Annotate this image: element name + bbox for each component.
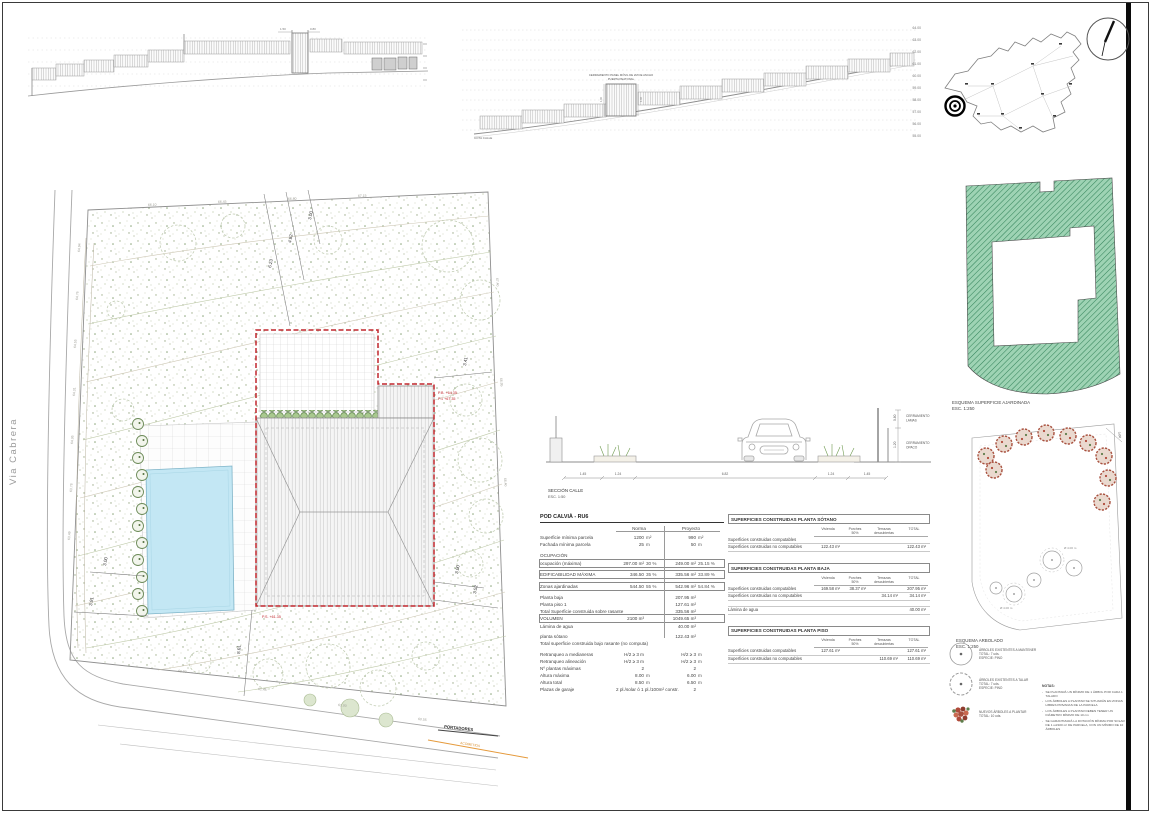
- dim-label: 0.80: [893, 414, 897, 421]
- svg-text:61.90: 61.90: [178, 669, 187, 674]
- header-spacer: [728, 576, 814, 586]
- cell-total: 34.14 m²: [900, 593, 928, 600]
- proyecto-value: H/2 ≥ 3: [662, 658, 698, 665]
- table-row: planta sótano 122.43 m²: [540, 633, 724, 640]
- svg-text:P.S. +61.35: P.S. +61.35: [262, 615, 281, 619]
- tree-plan-diagram: Ø 4.00 m Ø 4.00 m 3.00: [956, 412, 1124, 634]
- proyecto-value: H/2 ≥ 3: [662, 651, 698, 658]
- row-label: Superficies construidas no computables: [728, 544, 814, 551]
- svg-text:66.95: 66.95: [499, 378, 504, 387]
- proyecto-value: [662, 552, 698, 559]
- svg-text:63.49: 63.49: [67, 531, 72, 540]
- built-table-rows: Superficies construidas computables 127.…: [728, 648, 930, 664]
- table-row: [540, 567, 724, 571]
- proyecto-unit: [698, 608, 720, 615]
- table-row: Zonas ajardinadas 544.50 55 % 542.96 m² …: [540, 583, 724, 590]
- fence-type-labels: CERRAMIENTO LAMAS CERRAMIENTO OPACO: [906, 414, 930, 450]
- proyecto-value: 2: [662, 665, 698, 672]
- norma-value: 346.50: [616, 571, 646, 578]
- norma-value: [616, 552, 646, 559]
- norma-value: 8.00: [616, 672, 646, 679]
- normativa-title: POD CALVIÀ - RU6: [540, 514, 724, 523]
- row-label: planta sótano: [540, 633, 616, 640]
- table-row: Fachada mínima parcela 25 m 50 m: [540, 541, 724, 548]
- gate: [292, 33, 308, 73]
- svg-text:P.1 +67.35: P.1 +67.35: [438, 397, 455, 401]
- norma-value: [616, 633, 646, 640]
- level-value: 58.00: [895, 99, 921, 103]
- nota-item: - LOS ÁRBOLES A PLANTAR SE SITUARÁN EN Z…: [1042, 699, 1128, 707]
- col-proyecto: Proyecto: [662, 526, 720, 532]
- elevation-levels: 64.0063.0062.0061.0060.0059.0058.0057.00…: [895, 27, 921, 139]
- svg-text:66.45: 66.45: [218, 200, 227, 204]
- dim-label: 1.00: [639, 96, 643, 102]
- norma-unit: [646, 658, 662, 665]
- table-row: Total superficie construida bajo rasante…: [540, 640, 724, 647]
- proyecto-value: 6.50: [662, 679, 698, 686]
- row-label: ocupación (máxima): [540, 560, 616, 567]
- via-cabrera-label: Via Cabrera: [8, 418, 19, 485]
- table-row: Altura máxima 8.00 m 6.00 m: [540, 672, 724, 679]
- proyecto-unit: m²: [698, 534, 720, 541]
- cell-vivienda: [814, 593, 842, 600]
- cell-porches: 38.37 m²: [842, 586, 868, 593]
- bottom-label: COTA CALLE: [474, 136, 492, 140]
- bullet-dash: -: [1042, 719, 1043, 731]
- row-label: Superficie mínima parcela: [540, 534, 616, 541]
- level-value: 64.00: [895, 27, 921, 31]
- col-terrazas: Terrazas descubiertas: [868, 527, 900, 537]
- svg-text:P.B. +64.35: P.B. +64.35: [438, 391, 457, 395]
- table-row: Lámina de agua 40.00 m²: [728, 606, 930, 615]
- proyecto-unit: [698, 601, 720, 608]
- cell-vivienda: 127.61 m²: [814, 648, 842, 655]
- fence-elevation-b: CERRAMIENTO PANEL MÓVIL DE 2M DE ANCHO P…: [462, 20, 917, 142]
- proyecto-value: 127.61 m²: [662, 601, 698, 608]
- nota-item: - SE PLANTARÁ UN MÍNIMO DE 1 ÁRBOL POR C…: [1042, 690, 1128, 698]
- nota-item: - SE GARANTIZARÁ LA DOTACIÓN MÍNIMA POR …: [1042, 719, 1128, 731]
- row-label: Superficies construidas computables: [728, 586, 814, 593]
- col-vivienda: Vivienda: [814, 576, 842, 586]
- bin-boxes: [372, 57, 417, 70]
- table-divider: [664, 526, 665, 638]
- svg-text:1.24: 1.24: [615, 472, 622, 476]
- norma-unit: [646, 665, 662, 672]
- diameter-label: Ø 4.00 m: [1000, 606, 1013, 610]
- row-label: [540, 567, 616, 571]
- notes-block: NOTAS: - SE PLANTARÁ UN MÍNIMO DE 1 ÁRBO…: [1042, 684, 1128, 732]
- built-table-title: SUPERFICIES CONSTRUIDAS PLANTA BAJA: [728, 563, 930, 573]
- nota-text: LOS ÁRBOLES A PLANTAR SE SITUARÁN EN ZON…: [1046, 699, 1128, 707]
- proyecto-value: 50: [662, 541, 698, 548]
- norma-value: 2: [616, 665, 646, 672]
- proyecto-value: 335.56 m²: [662, 571, 698, 578]
- bullet-dash: -: [1042, 690, 1043, 698]
- proyecto-unit: [698, 552, 720, 559]
- level-value: 55.00: [895, 135, 921, 139]
- norma-value: 2100 m³: [616, 615, 646, 622]
- notes-title: NOTAS:: [1042, 684, 1128, 688]
- fence-panels: [480, 53, 914, 129]
- norma-unit: [646, 594, 662, 601]
- norma-unit: 30 %: [646, 560, 662, 567]
- norma-value: [616, 579, 646, 583]
- proyecto-value: 207.95 m²: [662, 594, 698, 601]
- built-table-header: Vivienda Porches 50% Terrazas descubiert…: [728, 527, 930, 537]
- col-total: TOTAL: [900, 638, 928, 648]
- built-table: SUPERFICIES CONSTRUIDAS PLANTA SÓTANO Vi…: [728, 514, 930, 552]
- caption-title: ESQUEMA SUPERFICIE AJARDINADA: [952, 400, 1030, 406]
- cell-terrazas: [868, 648, 900, 655]
- cell-porches: [842, 537, 868, 544]
- proyecto-value: [662, 579, 698, 583]
- col-porches: Porches 50%: [842, 638, 868, 648]
- diameter-label: Ø 4.00 m: [1064, 546, 1077, 550]
- table-row: EDIFICABILIDAD MÁXIMA 346.50 35 % 335.56…: [540, 571, 724, 578]
- proyecto-value: 122.43 m²: [662, 633, 698, 640]
- site-target-icon: [946, 97, 965, 116]
- tree-legend: ÁRBOLES EXISTENTES A MANTENER TOTAL: 7 u…: [948, 641, 1040, 731]
- norma-value: [616, 623, 646, 630]
- svg-text:1.45: 1.45: [864, 472, 871, 476]
- north-arrow-icon: [1085, 16, 1131, 62]
- cell-porches: [842, 656, 868, 663]
- built-table: SUPERFICIES CONSTRUIDAS PLANTA PISO Vivi…: [728, 626, 930, 664]
- built-surfaces-tables: SUPERFICIES CONSTRUIDAS PLANTA SÓTANO Vi…: [728, 514, 930, 675]
- island-outline: [945, 32, 1081, 132]
- pool: [146, 466, 234, 614]
- proyecto-value: [724, 640, 726, 647]
- table-row: Total Superficie construida sobre rasant…: [540, 608, 724, 615]
- gate-note: PUERTA PEATONAL: [608, 77, 635, 81]
- dim-label: 1.20: [893, 441, 897, 448]
- norma-value: 297.00 m²: [616, 560, 646, 567]
- cell-total: 110.69 m²: [900, 656, 928, 663]
- proyecto-unit: [698, 579, 720, 583]
- cell-total: 40.00 m²: [900, 607, 928, 614]
- svg-text:64.94: 64.94: [77, 243, 82, 252]
- built-table-rows: Superficies construidas computables 169.…: [728, 586, 930, 615]
- svg-text:CERRAMIENTO: CERRAMIENTO: [906, 441, 930, 445]
- row-label: Zonas ajardinadas: [540, 583, 616, 590]
- keep-tree-icon: [948, 641, 974, 667]
- norma-unit: [646, 623, 662, 630]
- street-section: 0.80 1.20 CERRAMIENTO LAMAS CERRAMIENTO …: [546, 404, 931, 504]
- new-tree-icon: [948, 701, 974, 727]
- normativa-header: Norma Proyecto: [540, 526, 724, 532]
- proyecto-value: 249.00 m²: [662, 560, 698, 567]
- legend-line: ESPECIE: PINO: [979, 686, 1028, 690]
- table-row: OCUPACIÓN: [540, 552, 724, 559]
- caption-scale: ESC. 1:250: [952, 406, 1030, 412]
- row-label: Total superficie construida bajo rasante…: [540, 640, 724, 647]
- legend-line: TOTAL: 10 uds.: [979, 714, 1026, 718]
- col-terrazas: Terrazas descubiertas: [868, 638, 900, 648]
- level-value: 63.00: [895, 39, 921, 43]
- svg-text:LAMAS: LAMAS: [906, 419, 917, 423]
- normativa-table: POD CALVIÀ - RU6 Norma Proyecto Superfic…: [540, 514, 724, 693]
- table-row: VOLUMEN 2100 m³ 1049.65 m³: [540, 615, 724, 622]
- built-table: SUPERFICIES CONSTRUIDAS PLANTA BAJA Vivi…: [728, 563, 930, 615]
- norma-unit: [646, 579, 662, 583]
- legend-line: ESPECIE: PINO: [979, 656, 1036, 660]
- proyecto-unit: m: [698, 651, 720, 658]
- nota-text: LOS ÁRBOLES A PLANTAR DEBEN TENER UN DIÁ…: [1046, 709, 1128, 717]
- cell-vivienda: 169.58 m²: [814, 586, 842, 593]
- col-porches: Porches 50%: [842, 576, 868, 586]
- svg-text:67.40: 67.40: [495, 278, 500, 287]
- table-row: Superficies construidas computables: [728, 537, 930, 545]
- dim-label: 3.00: [1117, 431, 1122, 438]
- cell-terrazas: [868, 544, 900, 551]
- row-label: VOLUMEN: [540, 615, 616, 622]
- table-row: Superficies construidas computables 127.…: [728, 648, 930, 656]
- row-label: Plazas de garaje: [540, 686, 616, 693]
- norma-unit: 55 %: [646, 583, 662, 590]
- cell-vivienda: [814, 537, 842, 544]
- dimension-chain-labels: 1.45 1.24 6.82 1.24 1.45: [580, 472, 871, 476]
- row-label: Retranqueo a medianeras: [540, 651, 616, 658]
- level-value: 60.00: [895, 75, 921, 79]
- built-table-header: Vivienda Porches 50% Terrazas descubiert…: [728, 638, 930, 648]
- table-row: Superficies construidas no computables 1…: [728, 544, 930, 552]
- svg-text:61.00: 61.00: [338, 703, 347, 708]
- dim-label: 1.50: [280, 27, 286, 31]
- nota-text: SE PLANTARÁ UN MÍNIMO DE 1 ÁRBOL POR CAD…: [1046, 690, 1128, 698]
- norma-unit: [646, 615, 662, 622]
- notes-list: - SE PLANTARÁ UN MÍNIMO DE 1 ÁRBOL POR C…: [1042, 690, 1128, 731]
- proyecto-unit: [698, 567, 720, 571]
- location-map: [933, 26, 1095, 154]
- cell-porches: [842, 607, 868, 614]
- dim-label: 0.80: [310, 27, 316, 31]
- dimension-chain: [562, 476, 888, 480]
- norma-unit: [646, 601, 662, 608]
- row-label: Retranqueo alineación: [540, 658, 616, 665]
- section-scale: ESC. 1:50: [548, 495, 565, 499]
- terrace-grid: [260, 334, 374, 412]
- table-row: Superficies construidas no computables 3…: [728, 593, 930, 601]
- planters: [594, 444, 860, 462]
- row-label: Superficies construidas no computables: [728, 593, 814, 600]
- right-fence: [878, 408, 888, 462]
- gate: [606, 84, 636, 116]
- row-label: Planta piso 1: [540, 601, 616, 608]
- cell-terrazas: [868, 537, 900, 544]
- legend-item-new: NUEVOS ÁRBOLES A PLANTAR TOTAL: 10 uds.: [948, 701, 1040, 727]
- table-row: Retranqueo a medianeras H/2 ≥ 3 m H/2 ≥ …: [540, 651, 724, 658]
- cell-total: 122.43 m²: [900, 544, 928, 551]
- norma-unit: [646, 686, 662, 693]
- proyecto-unit: [698, 633, 720, 640]
- proyecto-unit: 25.15 %: [698, 560, 720, 567]
- proyecto-value: [662, 567, 698, 571]
- nota-text: SE GARANTIZARÁ LA DOTACIÓN MÍNIMA POR SO…: [1046, 719, 1128, 731]
- svg-text:63.78: 63.78: [69, 483, 74, 492]
- norma-unit: 35 %: [646, 571, 662, 578]
- proyecto-unit: [698, 615, 720, 622]
- cell-porches: [842, 544, 868, 551]
- norma-value: [616, 601, 646, 608]
- norma-value: 544.50: [616, 583, 646, 590]
- garden-surface-diagram: [952, 172, 1124, 397]
- norma-unit: [646, 552, 662, 559]
- header-spacer: [728, 527, 814, 537]
- proyecto-unit: m: [698, 658, 720, 665]
- section-caption: SECCIÓN CALLE: [548, 488, 583, 493]
- proyecto-value: 2: [662, 686, 698, 693]
- svg-text:64.05: 64.05: [70, 435, 75, 444]
- row-label: EDIFICABILIDAD MÁXIMA: [540, 571, 616, 578]
- norma-unit: [646, 567, 662, 571]
- built-table-title: SUPERFICIES CONSTRUIDAS PLANTA SÓTANO: [728, 514, 930, 524]
- table-row: Plazas de garaje 2 pl./solar ó 1 pl./100…: [540, 686, 724, 693]
- norma-value: 8.50: [616, 679, 646, 686]
- site-plan: 6.23 4.82 3.00 3.41 3.00 3.52 3.00 3.91 …: [28, 148, 533, 793]
- svg-text:CERRAMIENTO: CERRAMIENTO: [906, 414, 930, 418]
- table-row: Retranqueo alineación H/2 ≥ 3 m H/2 ≥ 3 …: [540, 658, 724, 665]
- normativa-rows: Superficie mínima parcela 1200 m² 990 m²…: [540, 534, 724, 693]
- building-roof: [256, 386, 434, 606]
- built-table-header: Vivienda Porches 50% Terrazas descubiert…: [728, 576, 930, 586]
- svg-text:64.76: 64.76: [75, 291, 80, 300]
- norma-unit: [646, 608, 662, 615]
- proyecto-unit: [698, 686, 720, 693]
- proyecto-unit: [698, 623, 720, 630]
- cell-terrazas: [868, 586, 900, 593]
- car-front-view: [738, 419, 810, 461]
- legend-item-fell: ÁRBOLES EXISTENTES A TALAR TOTAL: 7 uds.…: [948, 671, 1040, 697]
- col-norma: Norma: [616, 526, 662, 532]
- row-label: OCUPACIÓN: [540, 552, 616, 559]
- ground-line: [28, 71, 428, 96]
- row-label: Superficies construidas no computables: [728, 656, 814, 663]
- norma-value: 25: [616, 541, 646, 548]
- cell-porches: [842, 593, 868, 600]
- svg-text:60.55: 60.55: [418, 717, 427, 722]
- svg-text:66.40: 66.40: [503, 478, 508, 487]
- drawing-sheet: { "colors":{"accent_red":"#c1272d","pool…: [0, 0, 1151, 813]
- garden-diagram-caption: ESQUEMA SUPERFICIE AJARDINADA ESC. 1:250: [952, 400, 1030, 411]
- col-terrazas: Terrazas descubiertas: [868, 576, 900, 586]
- norma-unit: [646, 651, 662, 658]
- level-value: 62.00: [895, 51, 921, 55]
- fell-tree-icon: [948, 671, 974, 697]
- cell-total: 207.95 m²: [900, 586, 928, 593]
- proyecto-value: 40.00 m²: [662, 623, 698, 630]
- row-label: Superficies construidas computables: [728, 537, 814, 544]
- norma-value: [616, 594, 646, 601]
- norma-value: 1200: [616, 534, 646, 541]
- svg-text:66.80: 66.80: [288, 197, 297, 201]
- proyecto-unit: 54.84 %: [698, 583, 720, 590]
- col-porches: Porches 50%: [842, 527, 868, 537]
- svg-text:66.10: 66.10: [148, 203, 157, 207]
- cell-terrazas: 110.69 m²: [868, 656, 900, 663]
- bullet-dash: -: [1042, 709, 1043, 717]
- norma-unit: m: [646, 672, 662, 679]
- header-spacer: [728, 638, 814, 648]
- row-label: Lámina de agua: [540, 623, 616, 630]
- row-label: Lámina de agua: [728, 607, 814, 614]
- proyecto-value: 1049.65 m³: [662, 615, 698, 622]
- level-value: 56.00: [895, 123, 921, 127]
- cell-porches: [842, 648, 868, 655]
- bullet-dash: -: [1042, 699, 1043, 707]
- row-label: Superficies construidas computables: [728, 648, 814, 655]
- proyecto-unit: [698, 665, 720, 672]
- garden-area-shape: [966, 178, 1120, 394]
- table-row: Planta piso 1 127.61 m²: [540, 601, 724, 608]
- proyecto-value: 335.56 m²: [662, 608, 698, 615]
- level-value: 59.00: [895, 87, 921, 91]
- table-row: Superficie mínima parcela 1200 m² 990 m²: [540, 534, 724, 541]
- level-value: 57.00: [895, 111, 921, 115]
- proyecto-unit: m: [698, 672, 720, 679]
- col-total: TOTAL: [900, 527, 928, 537]
- fence-elevation-a: 1.50 0.80: [28, 22, 428, 107]
- table-row: Altura total 8.50 m 6.50 m: [540, 679, 724, 686]
- proyecto-unit: [698, 594, 720, 601]
- header-spacer: [540, 526, 616, 532]
- row-label: [540, 579, 616, 583]
- norma-value: [616, 608, 646, 615]
- table-row: Nº plantas máximas 2 2: [540, 665, 724, 672]
- table-row: Lámina de agua 40.00 m²: [540, 623, 724, 630]
- svg-text:6.82: 6.82: [722, 472, 729, 476]
- dim-label: 1.00: [599, 96, 603, 102]
- norma-value: H/2 ≥ 3 m: [616, 651, 646, 658]
- norma-unit: m: [646, 679, 662, 686]
- col-vivienda: Vivienda: [814, 527, 842, 537]
- norma-value: H/2 ≥ 3 m: [616, 658, 646, 665]
- col-total: TOTAL: [900, 576, 928, 586]
- svg-text:64.31: 64.31: [72, 387, 77, 396]
- cell-terrazas: 34.14 m²: [868, 593, 900, 600]
- legend-item-keep: ÁRBOLES EXISTENTES A MANTENER TOTAL: 7 u…: [948, 641, 1040, 667]
- table-row: Planta baja 207.95 m²: [540, 594, 724, 601]
- table-row: Superficies construidas computables 169.…: [728, 586, 930, 594]
- built-table-title: SUPERFICIES CONSTRUIDAS PLANTA PISO: [728, 626, 930, 636]
- svg-text:8.01: 8.01: [236, 644, 242, 654]
- svg-text:1.45: 1.45: [580, 472, 587, 476]
- row-label: Planta baja: [540, 594, 616, 601]
- proyecto-value: 542.96 m²: [662, 583, 698, 590]
- norma-value: 2 pl./solar ó 1 pl./100m² constr.: [616, 686, 646, 693]
- cell-vivienda: [814, 656, 842, 663]
- level-value: 61.00: [895, 63, 921, 67]
- svg-text:OPACO: OPACO: [906, 446, 918, 450]
- cell-terrazas: [868, 607, 900, 614]
- proyecto-value: 990: [662, 534, 698, 541]
- norma-value: [616, 567, 646, 571]
- proyecto-unit: m: [698, 541, 720, 548]
- cell-total: [900, 537, 928, 544]
- svg-text:64.55: 64.55: [73, 339, 78, 348]
- built-table-rows: Superficies construidas computables Supe…: [728, 537, 930, 553]
- svg-text:67.15: 67.15: [358, 194, 367, 198]
- nota-item: - LOS ÁRBOLES A PLANTAR DEBEN TENER UN D…: [1042, 709, 1128, 717]
- norma-unit: [646, 633, 662, 640]
- proyecto-unit: m: [698, 679, 720, 686]
- table-row: [540, 579, 724, 583]
- row-label: Nº plantas máximas: [540, 665, 616, 672]
- norma-unit: m²: [646, 534, 662, 541]
- proyecto-value: 6.00: [662, 672, 698, 679]
- row-label: Altura máxima: [540, 672, 616, 679]
- svg-text:61.45: 61.45: [258, 687, 267, 692]
- table-row: ocupación (máxima) 297.00 m² 30 % 249.00…: [540, 560, 724, 567]
